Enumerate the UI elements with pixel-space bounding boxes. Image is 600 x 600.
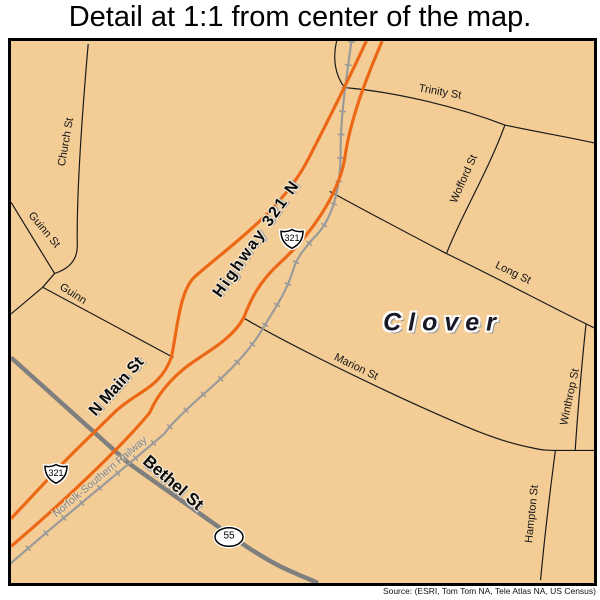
us-route-321-shield-south: 321: [43, 463, 69, 485]
road-trinity-st: [335, 41, 594, 143]
state-route-55-shield: 55: [213, 526, 245, 549]
road-long-st: [330, 191, 594, 327]
road-hampton-st: [541, 450, 556, 580]
minor-streets: [11, 41, 594, 580]
label-town-clover: Clover: [383, 309, 503, 338]
map-detail-page: Detail at 1:1 from center of the map.: [0, 0, 600, 600]
road-guinn-fork: [11, 273, 55, 314]
map-roads-layer: [11, 41, 594, 583]
shield-number: 55: [213, 531, 245, 542]
road-guinn: [43, 287, 174, 357]
road-n-main-st: [11, 41, 366, 519]
page-title: Detail at 1:1 from center of the map.: [0, 1, 600, 34]
source-credit: Source: (ESRI, Tom Tom NA, Tele Atlas NA…: [383, 586, 596, 596]
map-canvas[interactable]: [8, 38, 597, 586]
shield-number: 321: [279, 233, 305, 243]
road-marion-st: [244, 318, 594, 451]
us-route-321-shield-north: 321: [279, 228, 305, 250]
shield-number: 321: [43, 468, 69, 478]
